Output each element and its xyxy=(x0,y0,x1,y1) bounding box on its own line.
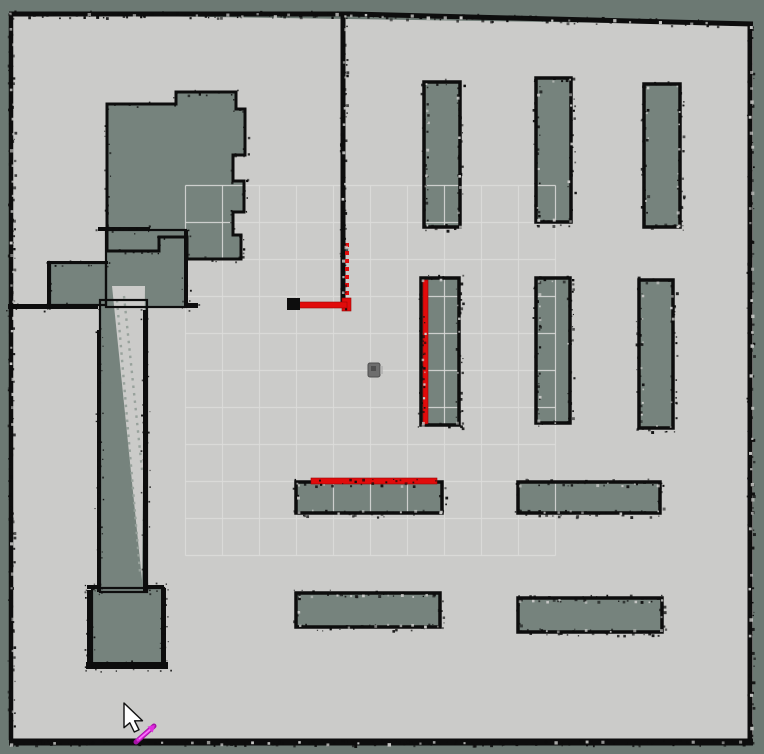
wall-noise xyxy=(546,630,548,632)
wall-noise xyxy=(641,168,644,171)
wall-noise xyxy=(102,337,103,338)
wall-noise xyxy=(105,210,107,212)
wall-noise xyxy=(462,193,463,194)
wall-noise xyxy=(98,309,99,310)
wall-noise xyxy=(569,402,572,405)
wall-noise xyxy=(350,485,352,487)
wall-noise xyxy=(166,660,167,661)
wall-noise xyxy=(413,514,415,516)
wall-noise xyxy=(659,487,661,489)
wall-noise xyxy=(28,17,31,20)
wall-noise xyxy=(344,511,346,513)
wall-noise xyxy=(342,126,344,128)
wall-noise xyxy=(230,222,231,223)
wall-noise xyxy=(753,166,755,168)
wall-noise xyxy=(656,425,658,427)
wall-noise xyxy=(751,344,754,347)
wall-noise xyxy=(610,21,612,23)
wall-noise xyxy=(418,426,419,427)
wall-noise xyxy=(408,592,410,594)
wall-noise xyxy=(69,17,71,19)
wall-noise xyxy=(9,380,11,382)
wall-noise xyxy=(619,480,622,483)
wall-noise xyxy=(568,180,571,183)
wall-noise xyxy=(241,15,243,17)
wall-noise xyxy=(535,744,537,746)
wall-noise xyxy=(352,626,354,628)
wall-noise xyxy=(644,220,645,221)
wall-noise xyxy=(750,32,752,34)
wall-noise xyxy=(461,410,463,412)
wall-noise xyxy=(346,112,348,114)
wall-noise xyxy=(11,406,14,409)
wall-noise xyxy=(13,548,15,550)
wall-noise xyxy=(752,492,755,495)
wall-noise xyxy=(539,326,542,329)
wall-noise xyxy=(572,291,574,293)
wall-noise xyxy=(147,442,149,444)
wall-noise xyxy=(362,479,365,482)
shelf-top-1 xyxy=(424,82,460,227)
wall-noise xyxy=(94,637,96,639)
wall-noise xyxy=(233,111,234,112)
wall-noise xyxy=(10,428,11,429)
wall-noise xyxy=(345,292,347,294)
wall-noise xyxy=(431,225,433,227)
wall-noise xyxy=(652,634,655,637)
wall-noise xyxy=(537,225,538,226)
wall-noise xyxy=(13,66,14,67)
wall-noise xyxy=(243,155,245,157)
wall-noise xyxy=(547,483,549,485)
wall-noise xyxy=(630,510,631,511)
wall-noise xyxy=(344,107,347,110)
wall-noise xyxy=(558,516,561,519)
wall-noise xyxy=(537,148,539,150)
wall-noise xyxy=(543,220,545,222)
wall-noise xyxy=(535,165,536,166)
wall-noise xyxy=(423,744,424,745)
wall-noise xyxy=(673,344,675,346)
wall-noise xyxy=(751,498,754,501)
wall-noise xyxy=(424,626,427,629)
wall-noise xyxy=(751,407,754,410)
wall-noise xyxy=(369,625,370,626)
wall-noise xyxy=(344,246,347,249)
wall-noise xyxy=(680,92,683,95)
wall-noise xyxy=(400,511,402,513)
wall-noise xyxy=(634,483,636,485)
wall-noise xyxy=(276,744,279,747)
wall-noise xyxy=(331,627,333,629)
wall-noise xyxy=(14,537,17,540)
wall-noise xyxy=(149,470,150,471)
wall-noise xyxy=(90,11,92,13)
wall-noise xyxy=(642,383,645,386)
wall-noise xyxy=(149,411,150,412)
wall-noise xyxy=(692,741,695,744)
wall-noise xyxy=(89,743,91,745)
wall-noise xyxy=(458,385,459,386)
wall-noise xyxy=(414,510,417,513)
wall-noise xyxy=(753,666,754,667)
wall-noise xyxy=(636,321,637,322)
wall-noise xyxy=(231,182,233,184)
wall-noise xyxy=(345,210,347,212)
wall-noise xyxy=(304,739,305,740)
wall-noise xyxy=(140,16,142,18)
wall-noise xyxy=(189,258,191,260)
wall-noise xyxy=(161,609,163,611)
wall-noise xyxy=(314,744,316,746)
wall-noise xyxy=(649,601,651,603)
wall-noise xyxy=(295,14,297,16)
wall-noise xyxy=(645,200,647,202)
wall-noise xyxy=(463,85,465,87)
wall-noise xyxy=(213,14,214,15)
wall-noise xyxy=(552,225,555,228)
wall-noise xyxy=(11,106,14,109)
wall-noise xyxy=(298,741,301,744)
wall-noise xyxy=(97,521,99,523)
wall-noise xyxy=(625,482,626,483)
wall-noise xyxy=(457,102,458,103)
wall-noise xyxy=(637,326,639,328)
wall-noise xyxy=(161,655,162,656)
wall-noise xyxy=(100,671,102,673)
wall-noise xyxy=(751,735,753,737)
wall-noise xyxy=(214,745,216,747)
wall-noise xyxy=(553,219,556,222)
wall-noise xyxy=(10,475,13,478)
wall-noise xyxy=(96,413,97,414)
wall-noise xyxy=(594,18,596,20)
wall-noise xyxy=(12,199,15,202)
wall-noise xyxy=(538,215,540,217)
wall-noise xyxy=(641,597,644,600)
wall-noise xyxy=(750,388,753,391)
wall-noise xyxy=(386,17,389,20)
wall-noise xyxy=(698,19,699,20)
wall-noise xyxy=(460,90,461,91)
wall-noise xyxy=(13,308,14,309)
wall-noise xyxy=(85,670,87,672)
wall-noise xyxy=(457,87,459,89)
wall-noise xyxy=(189,310,191,312)
wall-noise xyxy=(361,484,362,485)
wall-noise xyxy=(11,219,14,222)
wall-noise xyxy=(518,17,520,19)
wall-noise xyxy=(184,745,186,747)
wall-noise xyxy=(671,295,674,298)
wall-noise xyxy=(400,479,402,481)
wall-noise xyxy=(458,279,460,281)
wall-noise xyxy=(144,16,146,18)
wall-noise xyxy=(747,401,749,403)
wall-noise xyxy=(459,226,462,229)
wall-noise xyxy=(8,359,10,361)
wall-noise xyxy=(109,262,111,264)
wall-noise xyxy=(9,396,12,399)
wall-noise xyxy=(538,413,539,414)
wall-noise xyxy=(174,105,176,107)
wall-noise xyxy=(656,84,657,85)
wall-noise xyxy=(695,739,696,740)
wall-noise xyxy=(93,588,95,590)
wall-noise xyxy=(373,16,374,17)
wall-noise xyxy=(162,663,164,665)
wall-noise xyxy=(248,137,250,139)
wall-noise xyxy=(160,618,161,619)
wall-noise xyxy=(295,479,297,481)
wall-noise xyxy=(340,143,343,146)
wall-noise xyxy=(643,481,646,484)
wall-noise xyxy=(529,632,532,635)
wall-noise xyxy=(10,189,13,192)
wall-noise xyxy=(198,304,200,306)
wall-noise xyxy=(462,372,464,374)
wall-noise xyxy=(651,601,653,603)
wall-noise xyxy=(147,364,148,365)
wall-noise xyxy=(11,606,13,608)
wall-noise xyxy=(441,483,443,485)
wall-noise xyxy=(144,478,145,479)
wall-noise xyxy=(340,229,341,230)
wall-noise xyxy=(376,591,378,593)
wall-noise xyxy=(248,741,249,742)
wall-noise xyxy=(596,631,598,633)
wall-noise xyxy=(425,230,426,231)
wall-noise xyxy=(344,28,347,31)
wall-noise xyxy=(446,84,447,85)
wall-noise xyxy=(423,353,425,355)
wall-noise xyxy=(9,468,11,470)
wall-noise xyxy=(107,224,109,226)
wall-noise xyxy=(50,743,53,746)
shelf-mid-3 xyxy=(639,280,673,428)
wall-noise xyxy=(322,630,323,631)
wall-noise xyxy=(671,389,673,391)
wall-noise xyxy=(747,263,750,266)
wall-noise xyxy=(424,333,426,335)
wall-noise xyxy=(148,432,150,434)
wall-noise xyxy=(529,595,531,597)
wall-noise xyxy=(11,22,12,23)
wall-noise xyxy=(359,14,362,17)
wall-noise xyxy=(346,59,348,61)
wall-noise xyxy=(97,466,99,468)
wall-noise xyxy=(188,230,190,232)
wall-noise xyxy=(148,501,150,503)
wall-noise xyxy=(534,195,535,196)
wall-noise xyxy=(344,104,346,106)
wall-noise xyxy=(302,625,303,626)
wall-noise xyxy=(589,515,590,516)
wall-noise xyxy=(12,301,14,303)
wall-noise xyxy=(543,630,546,633)
occupancy-grid-map[interactable] xyxy=(0,0,764,754)
wall-noise xyxy=(443,616,445,618)
wall-noise xyxy=(636,332,639,335)
wall-noise xyxy=(563,281,566,284)
wall-noise xyxy=(538,168,540,170)
wall-noise xyxy=(462,358,463,359)
wall-noise xyxy=(560,224,562,226)
wall-noise xyxy=(459,116,462,119)
wall-noise xyxy=(133,14,136,17)
wall-noise xyxy=(753,507,754,508)
wall-noise xyxy=(97,569,98,570)
wall-noise xyxy=(649,18,651,20)
wall-noise xyxy=(427,156,429,158)
wall-noise xyxy=(218,92,220,94)
wall-noise xyxy=(750,542,753,545)
wall-noise xyxy=(637,346,638,347)
wall-noise xyxy=(569,219,570,220)
wall-noise xyxy=(365,14,367,16)
wall-noise xyxy=(335,13,338,16)
wall-noise xyxy=(571,484,573,486)
wall-noise xyxy=(643,90,645,92)
wall-noise xyxy=(370,740,371,741)
wall-noise xyxy=(137,106,139,108)
wall-noise xyxy=(425,594,428,597)
wall-noise xyxy=(572,410,574,412)
map-viewport[interactable] xyxy=(0,0,764,754)
wall-noise xyxy=(578,635,579,636)
wall-noise xyxy=(11,656,13,658)
wall-noise xyxy=(342,181,344,183)
wall-noise xyxy=(636,343,639,346)
wall-noise xyxy=(13,434,16,437)
wall-noise xyxy=(753,533,756,536)
wall-noise xyxy=(240,235,242,237)
wall-noise xyxy=(591,595,592,596)
wall-noise xyxy=(439,511,442,514)
wall-noise xyxy=(638,511,640,513)
wall-noise xyxy=(751,268,754,271)
wall-noise xyxy=(148,376,149,377)
wall-noise xyxy=(546,601,549,604)
wall-noise xyxy=(748,366,751,369)
wall-noise xyxy=(462,275,464,277)
wall-noise xyxy=(395,480,397,482)
wall-noise xyxy=(518,597,520,599)
wall-noise xyxy=(102,413,103,414)
wall-noise xyxy=(752,652,755,655)
wall-noise xyxy=(422,151,423,152)
wall-noise xyxy=(636,428,638,430)
wall-noise xyxy=(381,513,384,516)
wall-noise xyxy=(10,95,12,97)
wall-noise xyxy=(12,195,14,197)
wall-noise xyxy=(567,343,569,345)
wall-noise xyxy=(141,415,143,417)
wall-noise xyxy=(9,721,10,722)
wall-noise xyxy=(747,307,748,308)
wall-noise xyxy=(12,720,13,721)
wall-noise xyxy=(682,178,684,180)
wall-noise xyxy=(671,321,673,323)
wall-noise xyxy=(534,597,537,600)
wall-noise xyxy=(106,17,109,20)
wall-noise xyxy=(572,283,574,285)
wall-noise xyxy=(751,54,753,56)
wall-noise xyxy=(537,219,540,222)
wall-noise xyxy=(458,331,460,333)
wall-noise xyxy=(50,283,52,285)
wall-noise xyxy=(103,17,104,18)
wall-noise xyxy=(568,225,570,227)
wall-noise xyxy=(743,744,746,747)
wall-noise xyxy=(321,739,322,740)
wall-noise xyxy=(265,13,267,15)
wall-noise xyxy=(343,123,345,125)
wall-noise xyxy=(12,18,14,20)
wall-noise xyxy=(99,479,100,480)
wall-noise xyxy=(13,13,15,15)
wall-noise xyxy=(158,236,159,237)
wall-noise xyxy=(440,279,443,282)
wall-noise xyxy=(343,138,345,140)
wall-noise xyxy=(243,239,244,240)
wall-noise xyxy=(257,13,259,15)
wall-noise xyxy=(637,288,639,290)
wall-noise xyxy=(116,670,117,671)
wall-noise xyxy=(106,144,108,146)
wall-noise xyxy=(161,742,163,744)
wall-noise xyxy=(11,565,14,568)
wall-noise xyxy=(395,17,397,19)
wall-noise xyxy=(10,743,13,746)
wall-noise xyxy=(401,485,404,488)
wall-noise xyxy=(554,741,557,744)
wall-noise xyxy=(442,600,444,602)
wall-noise xyxy=(367,16,369,18)
wall-noise xyxy=(97,436,98,437)
wall-noise xyxy=(631,482,632,483)
wall-noise xyxy=(641,367,643,369)
wall-noise xyxy=(294,590,295,591)
wall-noise xyxy=(748,479,749,480)
wall-noise xyxy=(182,301,184,303)
wall-noise xyxy=(14,681,15,682)
wall-noise xyxy=(749,597,752,600)
wall-noise xyxy=(751,331,754,334)
wall-noise xyxy=(680,739,682,741)
wall-noise xyxy=(12,615,13,616)
wall-noise xyxy=(191,742,194,745)
wall-noise xyxy=(419,318,421,320)
wall-noise xyxy=(156,583,158,585)
wall-noise xyxy=(294,510,296,512)
wall-noise xyxy=(658,516,659,517)
wall-noise xyxy=(657,511,659,513)
wall-noise xyxy=(545,741,547,743)
wall-noise xyxy=(747,81,749,83)
wall-noise xyxy=(163,595,164,596)
wall-noise xyxy=(12,378,15,381)
wall-noise xyxy=(461,362,462,363)
wall-noise xyxy=(344,93,346,95)
wall-noise xyxy=(570,81,572,83)
wall-noise xyxy=(674,332,676,334)
wall-noise xyxy=(353,13,356,16)
wall-noise xyxy=(9,460,11,462)
wall-noise xyxy=(644,86,646,88)
wall-noise xyxy=(657,484,660,487)
wall-noise xyxy=(12,82,15,85)
